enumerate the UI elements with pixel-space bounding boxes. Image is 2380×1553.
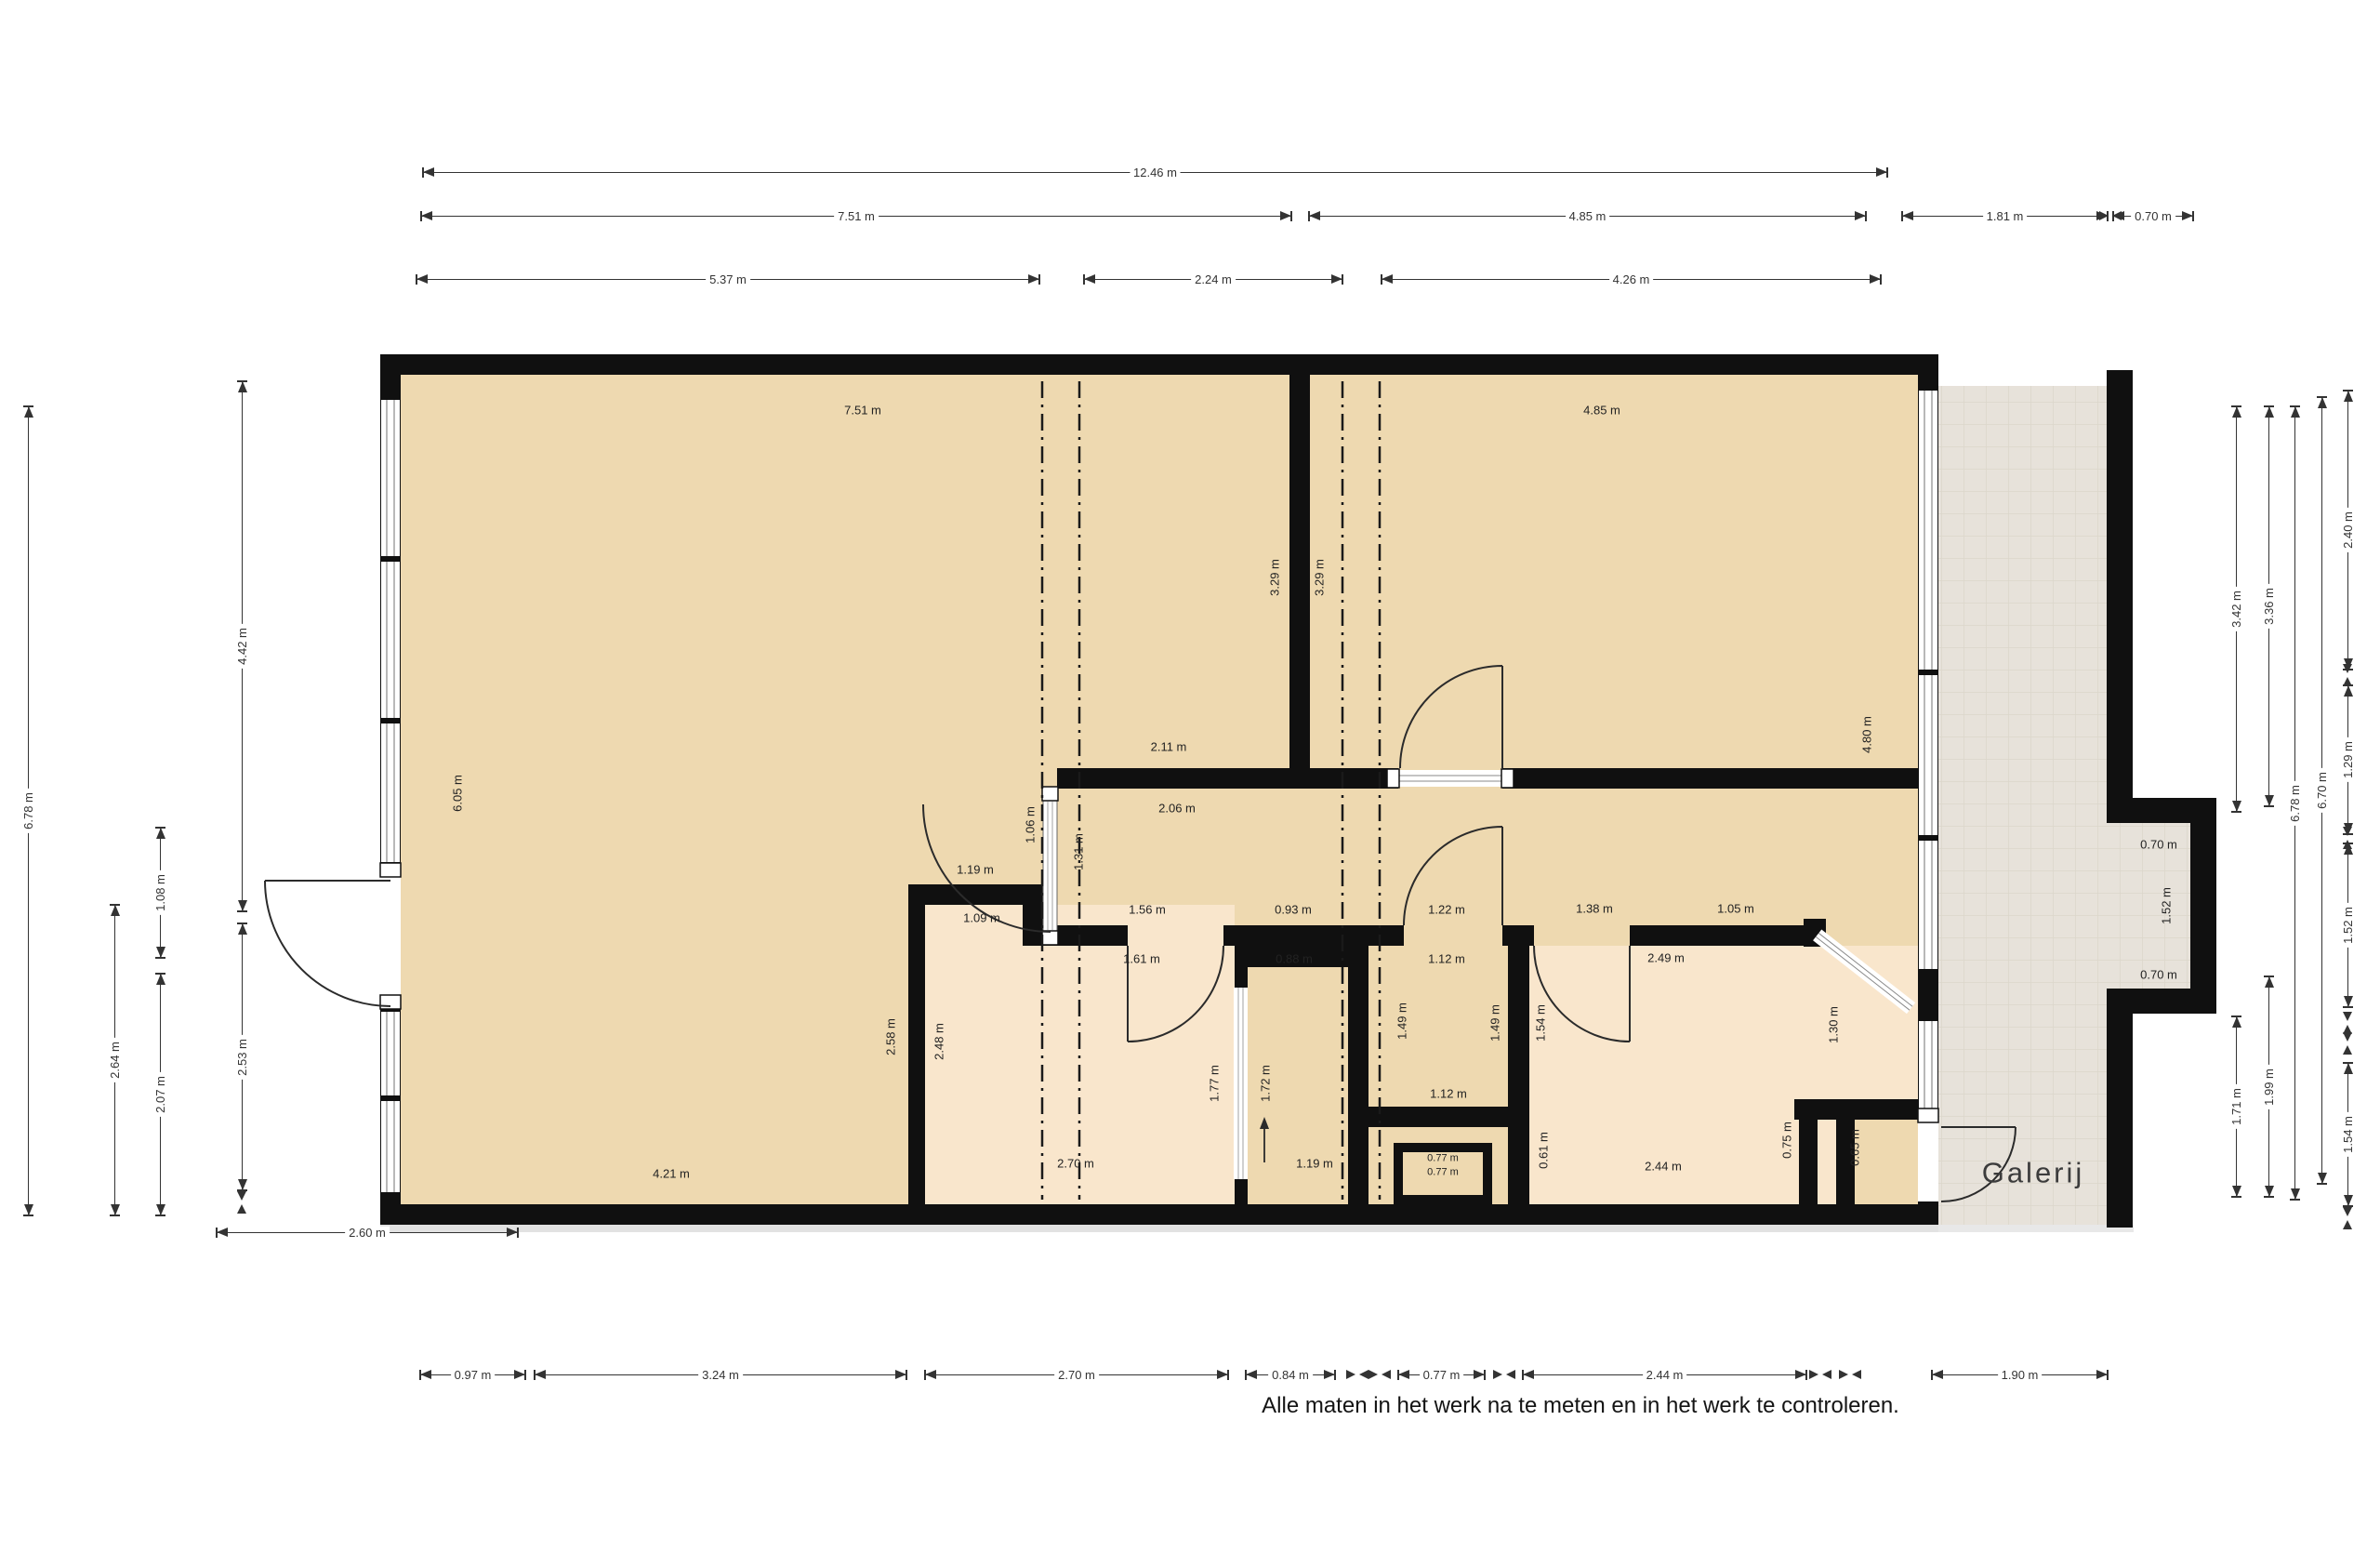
dimension-tick [155,973,165,975]
compressed-dimension-marker [2343,1032,2352,1055]
dimension-tick [2264,1196,2274,1198]
dimension-tick [534,1370,535,1380]
dimension-line: 3.36 m [2268,406,2269,806]
dimension-tick [524,1370,526,1380]
plan-dimension-label: 0.70 m [2140,839,2177,851]
plan-dimension-label: 4.85 m [1583,405,1620,417]
plan-dimension-label: 3.29 m [1314,559,1326,596]
dimension-line: 2.60 m [217,1232,518,1233]
dimension-tick [419,1370,421,1380]
dimension-value: 1.81 m [1983,210,2028,223]
dimension-line: 6.70 m [2321,397,2322,1184]
dimension-value: 3.42 m [2230,587,2243,631]
plan-dimension-label: 1.12 m [1428,953,1465,965]
dimension-line: 4.42 m [242,381,243,911]
dimension-tick [110,1215,120,1216]
plan-dimension-label: 0.88 m [1276,953,1313,965]
plan-dimension-label: 4.80 m [1861,716,1873,753]
dimension-line: 1.81 m [1902,216,2108,217]
dimension-line: 1.99 m [2268,976,2269,1197]
dimension-tick [2231,1196,2241,1198]
plan-dimension-label: 1.49 m [1489,1004,1501,1042]
plan-dimension-label: 1.49 m [1396,1002,1408,1040]
plan-dimension-label: 0.77 m [1427,1168,1459,1178]
dimension-tick [237,923,247,924]
dimension-tick [2231,405,2241,407]
dimension-tick [517,1228,519,1238]
dimension-value: 5.37 m [706,273,750,286]
plan-dimension-label: 1.56 m [1129,904,1166,916]
dimension-value: 2.64 m [109,1038,122,1082]
dimension-value: 12.46 m [1130,166,1181,179]
plan-dimension-label: 1.09 m [963,912,1000,924]
dimension-line: 2.53 m [242,923,243,1190]
plan-dimension-label: 1.06 m [1025,806,1037,843]
plan-dimension-label: 4.21 m [653,1168,690,1180]
plan-dimension-label: 0.65 m [1849,1129,1861,1166]
dimension-tick [2107,1370,2109,1380]
dimension-line: 6.78 m [2294,406,2295,1200]
dimension-line: 2.64 m [114,905,115,1215]
dimension-tick [1484,1370,1486,1380]
plan-dimension-label: 1.38 m [1576,903,1613,915]
dimension-value: 2.40 m [2342,508,2355,552]
plan-dimension-label: 1.30 m [1828,1006,1840,1043]
dimension-value: 0.84 m [1268,1369,1313,1382]
plan-dimension-label: 1.05 m [1717,903,1754,915]
dimension-tick [110,904,120,906]
compressed-dimension-marker [2343,664,2352,686]
dimension-tick [1397,1370,1399,1380]
dimension-tick [155,1215,165,1216]
plan-dimension-label: 0.70 m [2140,969,2177,981]
dimension-tick [1227,1370,1229,1380]
dimension-tick [2343,390,2353,392]
dimension-tick [420,211,422,221]
dimension-tick [1865,211,1867,221]
dimension-tick [2343,1006,2353,1008]
dimension-value: 6.78 m [22,789,35,833]
dimension-value: 6.78 m [2289,781,2302,826]
dimension-tick [2264,805,2274,807]
dimension-tick [1083,274,1085,285]
dimension-value: 1.99 m [2263,1065,2276,1109]
plan-dimension-label: 0.93 m [1275,904,1312,916]
dimension-line: 1.71 m [2236,1016,2237,1197]
dimension-value: 4.42 m [236,624,249,669]
dimension-value: 0.97 m [451,1369,496,1382]
dimension-value: 1.29 m [2342,737,2355,782]
dimension-value: 4.26 m [1609,273,1654,286]
plan-dimension-label: 1.54 m [1535,1004,1547,1042]
plan-dimension-label: 1.31 m [1073,833,1085,870]
dimension-line: 12.46 m [423,172,1887,173]
dimension-tick [2264,405,2274,407]
compressed-dimension-marker [237,1191,246,1214]
dimension-tick [924,1370,926,1380]
dimension-line: 2.07 m [160,974,161,1215]
dimension-value: 1.71 m [2230,1084,2243,1129]
dimension-tick [1290,211,1292,221]
dimension-line: 1.90 m [1932,1374,2108,1375]
dimension-tick [237,380,247,382]
dimension-value: 2.70 m [1054,1369,1099,1382]
dimension-tick [2343,1062,2353,1064]
dimension-tick [422,167,424,178]
dimension-line: 2.24 m [1084,279,1342,280]
dimension-tick [2264,976,2274,977]
dimension-value: 1.52 m [2342,903,2355,948]
plan-dimension-label: 0.77 m [1427,1154,1459,1164]
dimension-line: 4.26 m [1382,279,1881,280]
dimension-value: 0.77 m [1420,1369,1464,1382]
dimension-tick [906,1370,907,1380]
dimension-tick [2231,1015,2241,1017]
plan-dimension-label: 1.77 m [1209,1065,1221,1102]
dimension-line: 1.52 m [2347,843,2348,1007]
dimension-line: 4.85 m [1309,216,1866,217]
dimension-value: 0.70 m [2131,210,2175,223]
dimension-tick [23,1215,33,1216]
dimension-tick [2317,396,2327,398]
dimension-tick [23,405,33,407]
dimension-tick [416,274,417,285]
galerij-label: Galerij [1982,1159,2085,1188]
dimension-tick [1334,1370,1336,1380]
dimension-tick [1880,274,1882,285]
plan-dimension-label: 1.61 m [1123,953,1160,965]
dimension-tick [1886,167,1888,178]
dimension-line: 3.42 m [2236,406,2237,812]
dimension-line: 7.51 m [421,216,1291,217]
dimension-tick [1805,1370,1807,1380]
plan-dimension-label: 1.19 m [957,864,994,876]
dimension-tick [237,910,247,912]
compressed-dimension-marker [2343,827,2352,849]
dimension-value: 1.90 m [1998,1369,2043,1382]
plan-dimension-label: 2.48 m [933,1023,945,1060]
dimension-tick [216,1228,218,1238]
compressed-dimension-marker [1493,1370,1515,1379]
dimension-line: 3.24 m [535,1374,906,1375]
dimension-line: 1.29 m [2347,685,2348,834]
dimension-tick [1931,1370,1933,1380]
plan-dimension-label: 0.61 m [1538,1132,1550,1169]
floorplan-canvas: 7.51 m4.85 m3.29 m3.29 m4.80 m6.05 m2.11… [0,0,2380,1553]
dimension-value: 3.24 m [698,1369,743,1382]
plan-dimension-label: 7.51 m [844,405,881,417]
dimension-tick [2290,1199,2300,1201]
dimension-line: 0.84 m [1246,1374,1335,1375]
dimension-value: 1.54 m [2342,1112,2355,1157]
dimension-value: 3.36 m [2263,584,2276,629]
plan-dimension-label: 1.72 m [1260,1065,1272,1102]
dimension-value: 6.70 m [2316,768,2329,813]
plan-dimension-label: 1.22 m [1428,904,1465,916]
dimension-value: 7.51 m [834,210,879,223]
dimension-line: 0.97 m [420,1374,525,1375]
dimension-value: 4.85 m [1566,210,1610,223]
compressed-dimension-marker [1839,1370,1861,1379]
dimension-tick [2192,211,2194,221]
dimension-value: 2.24 m [1191,273,1236,286]
dimension-line: 2.44 m [1523,1374,1806,1375]
compressed-dimension-marker [1346,1370,1368,1379]
dimension-value: 2.53 m [236,1035,249,1080]
compressed-dimension-marker [2099,211,2122,220]
compressed-dimension-marker [1368,1370,1391,1379]
dimension-tick [155,957,165,959]
dimension-value: 1.08 m [154,870,167,915]
dimension-line: 0.70 m [2113,216,2193,217]
plan-dimension-label: 0.75 m [1781,1122,1793,1159]
dimension-tick [1245,1370,1247,1380]
plan-dimension-label: 2.49 m [1647,952,1685,964]
dimension-line: 0.77 m [1398,1374,1485,1375]
annotation-layer: 7.51 m4.85 m3.29 m3.29 m4.80 m6.05 m2.11… [0,0,2380,1553]
plan-dimension-label: 2.70 m [1057,1158,1094,1170]
plan-dimension-label: 1.52 m [2161,887,2173,924]
plan-dimension-label: 6.05 m [452,775,464,812]
dimension-tick [1901,211,1903,221]
dimension-tick [2317,1183,2327,1185]
dimension-value: 2.44 m [1643,1369,1687,1382]
plan-dimension-label: 2.11 m [1151,741,1187,753]
plan-dimension-label: 1.12 m [1430,1088,1467,1100]
compressed-dimension-marker [2343,1207,2352,1229]
dimension-tick [1308,211,1310,221]
dimension-line: 2.70 m [925,1374,1228,1375]
dimension-tick [2290,405,2300,407]
dimension-value: 2.60 m [345,1227,390,1240]
dimension-tick [1522,1370,1524,1380]
dimension-line: 6.78 m [28,406,29,1215]
plan-dimension-label: 1.19 m [1296,1158,1333,1170]
dimension-line: 2.40 m [2347,391,2348,670]
plan-dimension-label: 2.58 m [885,1018,897,1055]
dimension-tick [1381,274,1382,285]
dimension-line: 5.37 m [416,279,1039,280]
footer-note: Alle maten in het werk na te meten en in… [1262,1393,1899,1419]
compressed-dimension-marker [2343,1012,2352,1034]
plan-dimension-label: 2.44 m [1645,1161,1682,1173]
dimension-line: 1.54 m [2347,1063,2348,1206]
plan-dimension-label: 3.29 m [1269,559,1281,596]
dimension-line: 1.08 m [160,828,161,958]
dimension-tick [2231,811,2241,813]
dimension-tick [1342,274,1343,285]
dimension-tick [1038,274,1040,285]
compressed-dimension-marker [1809,1370,1831,1379]
dimension-value: 2.07 m [154,1072,167,1117]
plan-dimension-label: 2.06 m [1158,803,1196,815]
dimension-tick [155,827,165,829]
